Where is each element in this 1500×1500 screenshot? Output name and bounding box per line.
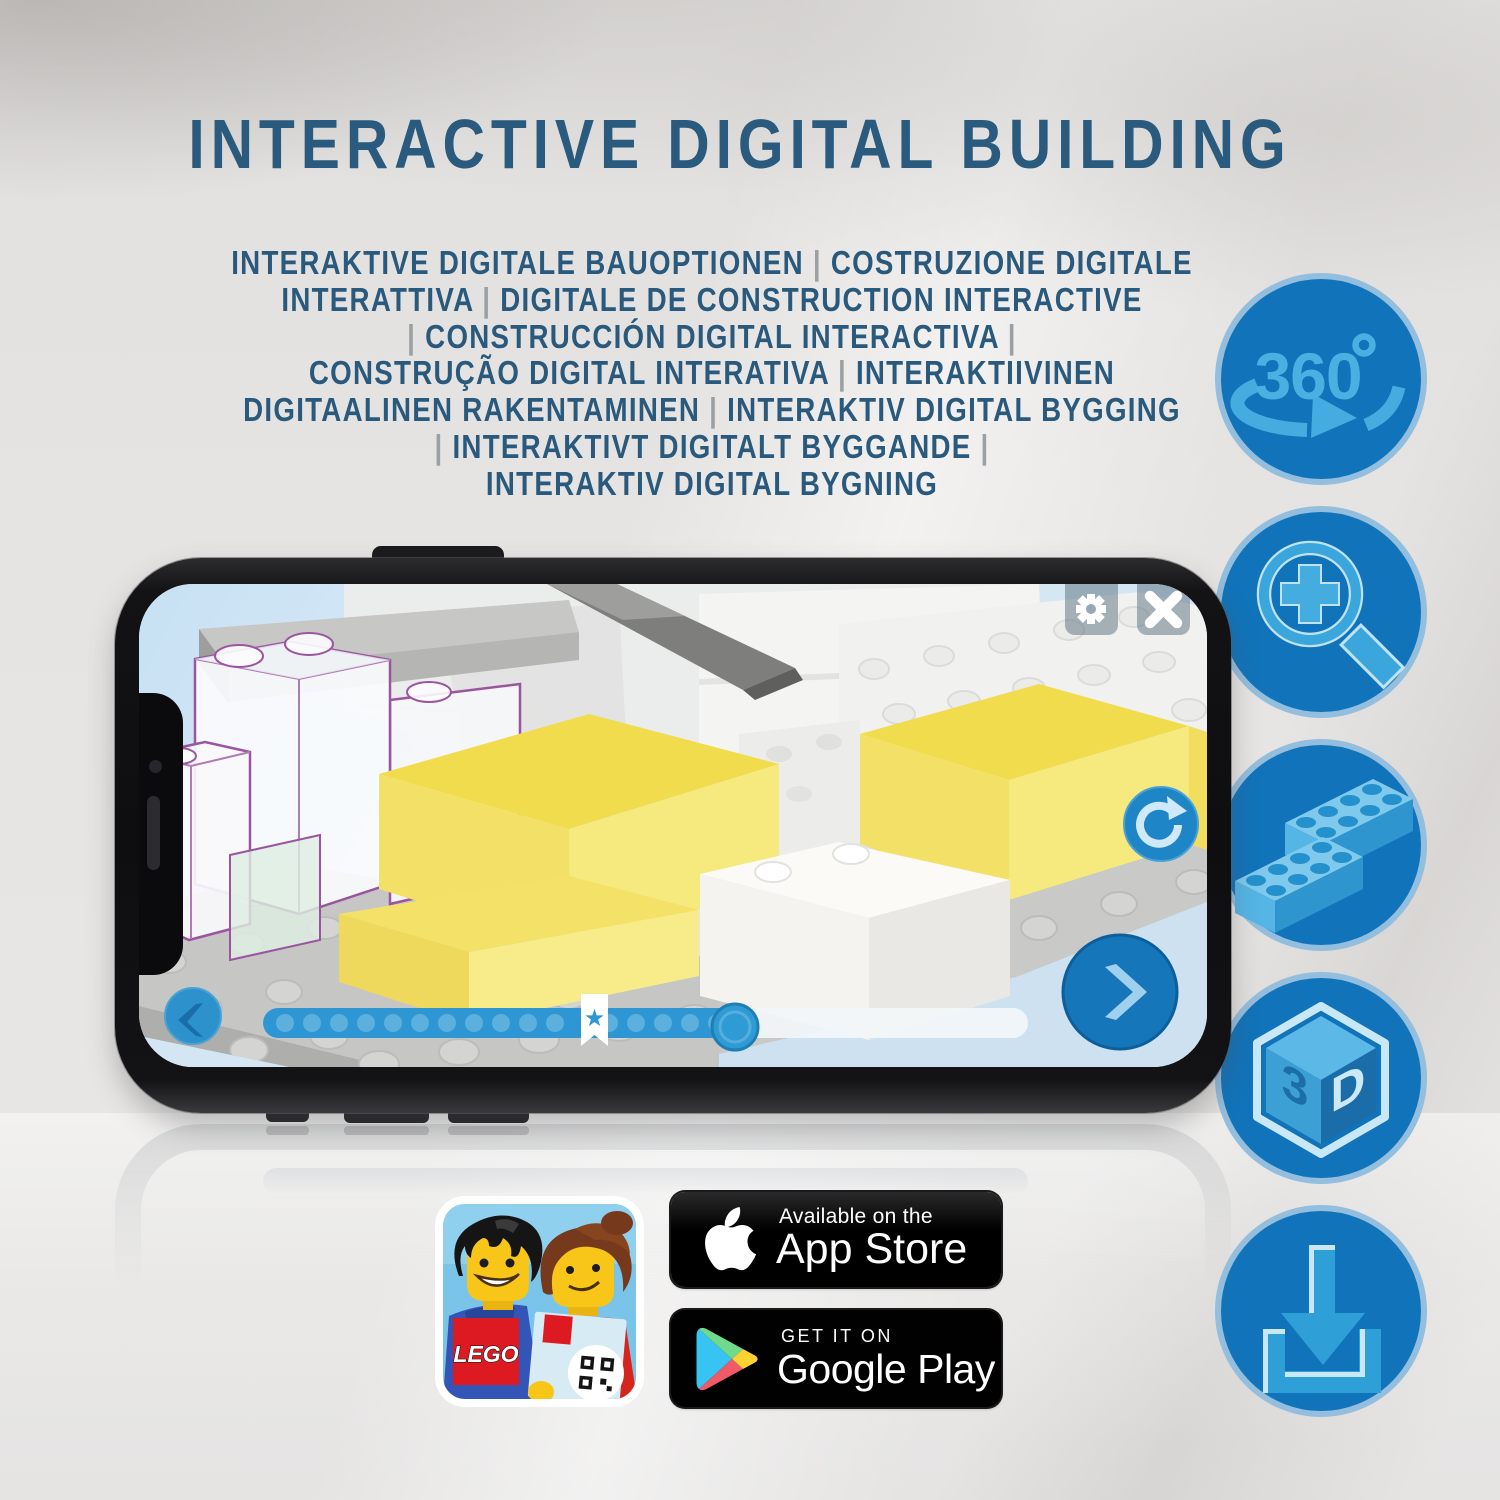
svg-text:LEGO: LEGO [453,1341,518,1367]
svg-text:360: 360 [1254,339,1361,413]
svg-text:★: ★ [584,1005,606,1032]
